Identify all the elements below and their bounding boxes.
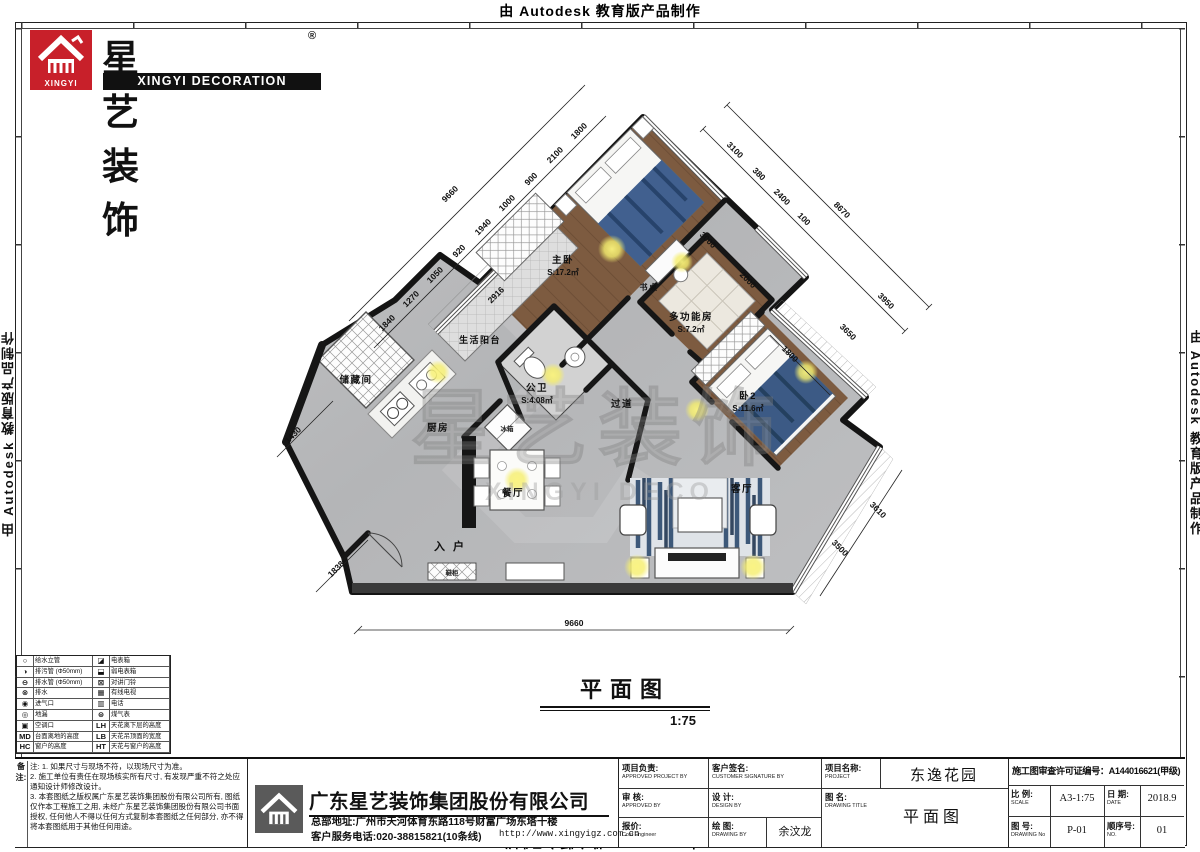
project-name-value: 东逸花园: [880, 764, 1008, 785]
legend-table: ○给水立管◪电表箱◑排污管 (Φ50mm)⬓弱电表箱⊖排水管 (Φ50mm)⊠对…: [16, 655, 171, 754]
drawing-title-value: 平面图: [858, 803, 1008, 827]
divider: [1104, 785, 1105, 847]
legend-symbol: LH: [93, 721, 110, 732]
plan-title-block: 平面图 1:75: [540, 672, 710, 728]
notes-list: 注: 1. 如果尺寸与现场不符，以现场尺寸为准。2. 施工单位有责任在现场核实所…: [30, 762, 244, 832]
legend-symbol: ⊠: [93, 678, 110, 689]
company-section: 广东星艺装饰集团股份有限公司 总部地址:广州市天河体育东路118号财富广场东塔十…: [247, 759, 619, 847]
plan-title-text: 平面图: [540, 672, 710, 704]
notes-section: 备注: 注: 1. 如果尺寸与现场不符，以现场尺寸为准。2. 施工单位有责任在现…: [15, 759, 248, 847]
dimension-label: 8670: [832, 200, 853, 221]
dimension-label: 2400: [772, 187, 793, 208]
divider: [618, 817, 821, 818]
legend-label: 排水: [34, 688, 93, 699]
room-label: 公卫: [526, 383, 548, 394]
permit-number: 施工图审查许可证编号：A144016621(甲级): [1012, 763, 1182, 777]
legend-label: 空调口: [34, 721, 93, 732]
legend-symbol: ◎: [17, 710, 34, 721]
dimension-label: 9660: [440, 183, 461, 204]
company-phone: 客户服务电话:020-38815821(10条线): [311, 828, 482, 843]
drawing-by-value: 余汶龙: [770, 823, 820, 839]
legend-label: 对讲门铃: [110, 678, 170, 689]
info-section: 施工图审查许可证编号：A144016621(甲级) 比 例: SCALE A3-…: [1008, 759, 1184, 847]
legend-row: ▣空调口LH天花离下层的高度: [17, 721, 170, 732]
room-area-label: S:7.2㎡: [677, 324, 704, 334]
dimension-label: 2100: [545, 144, 566, 165]
field-project-name: 项目名称: PROJECT: [825, 762, 861, 780]
legend-row: ◎地漏⊜煤气表: [17, 710, 170, 721]
furniture-label: 鞋柜: [446, 568, 460, 577]
legend-symbol: ▦: [93, 688, 110, 699]
legend-row: ◉进气口▥电话: [17, 699, 170, 710]
field-design: 设 计: DESIGN BY: [712, 791, 741, 809]
legend-symbol: ◪: [93, 656, 110, 667]
title-block-strip: 备注: 注: 1. 如果尺寸与现场不符，以现场尺寸为准。2. 施工单位有责任在现…: [15, 757, 1185, 848]
drawing-no-value: P-01: [1050, 825, 1104, 836]
room-label: 客厅: [730, 483, 753, 495]
legend-symbol: ○: [17, 656, 34, 667]
legend-symbol: ⊖: [17, 678, 34, 689]
date-value: 2018.9: [1140, 793, 1184, 804]
room-area-label: S:4.08㎡: [521, 395, 553, 405]
legend-row: ○给水立管◪电表箱: [17, 656, 170, 667]
legend-label: 窗户的高度: [34, 742, 93, 753]
field-date: 日 期: DATE: [1107, 788, 1129, 806]
legend-row: ⊖排水管 (Φ50mm)⊠对讲门铃: [17, 678, 170, 689]
field-customer-signature: 客户签名: CUSTOMER SIGNATURE BY: [712, 762, 784, 780]
legend-row: ⊗排水▦有线电视: [17, 688, 170, 699]
company-address: 总部地址:广州市天河体育东路118号财富广场东塔十楼: [311, 813, 558, 828]
titleblock-logo: [255, 785, 303, 833]
legend-symbol: HT: [93, 742, 110, 753]
legend-symbol: MD: [17, 732, 34, 743]
room-label: 卧2: [739, 390, 757, 402]
field-cost: 报价: Cost Engineer: [622, 820, 656, 838]
legend-symbol: HC: [17, 742, 34, 753]
legend-symbol: ⬓: [93, 667, 110, 678]
field-project-lead: 项目负责: APPROVED PROJECT BY: [622, 762, 687, 780]
plan-title-underline-2: [540, 710, 710, 711]
field-scale: 比 例: SCALE: [1011, 788, 1033, 806]
notes-label: 备注:: [15, 761, 28, 847]
room-area-label: S:17.2㎡: [547, 267, 579, 277]
legend-symbol: ▥: [93, 699, 110, 710]
legend-label: 进气口: [34, 699, 93, 710]
room-area-label: S:11.6㎡: [732, 403, 763, 413]
legend-label: 弱电表箱: [110, 667, 170, 678]
approval-section: 项目负责: APPROVED PROJECT BY 审 核: APPROVED …: [618, 759, 1009, 847]
room-label: 餐厅: [501, 487, 524, 499]
dimension-label: 100: [796, 210, 813, 227]
plan-title-underline-1: [540, 706, 710, 708]
legend-symbol: ◑: [17, 667, 34, 678]
legend-row: ◑排污管 (Φ50mm)⬓弱电表箱: [17, 667, 170, 678]
house-icon-small: [255, 785, 303, 833]
room-label: 多功能房: [669, 311, 713, 323]
note-item: 2. 施工单位有责任在现场核实所有尺寸, 有发现严重不符之处应通知设计师修改设计…: [30, 772, 244, 792]
legend-label: 排水管 (Φ50mm): [34, 678, 93, 689]
dimension-label: 9660: [565, 618, 584, 628]
divider: [1008, 785, 1184, 786]
legend-label: 电话: [110, 699, 170, 710]
divider: [766, 817, 767, 847]
dimension-label: 3650: [838, 322, 859, 343]
field-drawing-by: 绘 图: DRAWING BY: [712, 820, 747, 838]
legend-symbol: ⊜: [93, 710, 110, 721]
divider: [708, 759, 709, 847]
legend-symbol: ⊗: [17, 688, 34, 699]
scale-value: A3-1:75: [1050, 793, 1104, 804]
legend-row: MD台面离地的高度LB天花吊顶面的宽度: [17, 732, 170, 743]
dimension-label: 1940: [473, 216, 494, 237]
divider: [1008, 816, 1184, 817]
furniture-label: 冰箱: [501, 424, 515, 433]
legend-symbol: LB: [93, 732, 110, 743]
divider: [821, 759, 822, 847]
note-item: 3. 本套图纸之版权属广东星艺装饰集团股份有限公司所有, 图纸仅作本工程施工之用…: [30, 792, 244, 832]
room-label: 书桌: [640, 282, 659, 292]
divider: [618, 788, 1008, 789]
legend-row: HC窗户的高度HT天花与窗户的高度: [17, 742, 170, 753]
room-label: 厨房: [427, 422, 449, 434]
legend-symbol: ◉: [17, 699, 34, 710]
legend-label: 天花与窗户的高度: [110, 742, 170, 753]
room-label: 生活阳台: [459, 334, 501, 345]
legend-label: 天花离下层的高度: [110, 721, 170, 732]
legend-label: 有线电视: [110, 688, 170, 699]
room-label: 入户: [434, 539, 472, 553]
field-seq-no: 顺序号: NO.: [1107, 820, 1135, 838]
seq-no-value: 01: [1140, 825, 1184, 836]
legend-label: 地漏: [34, 710, 93, 721]
legend-label: 电表箱: [110, 656, 170, 667]
watermark-cn: 星艺装饰: [410, 382, 786, 476]
dimension-label: 3950: [876, 291, 897, 312]
legend-symbol: ▣: [17, 721, 34, 732]
note-item: 注: 1. 如果尺寸与现场不符，以现场尺寸为准。: [30, 762, 244, 772]
room-label: 储藏间: [339, 374, 372, 386]
legend-label: 煤气表: [110, 710, 170, 721]
dimension-label: 1800: [569, 120, 590, 141]
legend-label: 给水立管: [34, 656, 93, 667]
room-label: 过道: [611, 398, 633, 410]
legend-label: 排污管 (Φ50mm): [34, 667, 93, 678]
legend-label: 台面离地的高度: [34, 732, 93, 743]
plan-scale-text: 1:75: [540, 713, 710, 728]
field-approved: 审 核: APPROVED BY: [622, 791, 661, 809]
room-label: 主卧: [552, 254, 574, 266]
field-drawing-no: 图 号: DRAWING No: [1011, 820, 1045, 838]
dimension-label: 3100: [725, 140, 746, 161]
legend-label: 天花吊顶面的宽度: [110, 732, 170, 743]
dimension-label: 1000: [497, 192, 518, 213]
dimension-label: 380: [751, 165, 768, 182]
bottom-wall: [352, 583, 793, 593]
